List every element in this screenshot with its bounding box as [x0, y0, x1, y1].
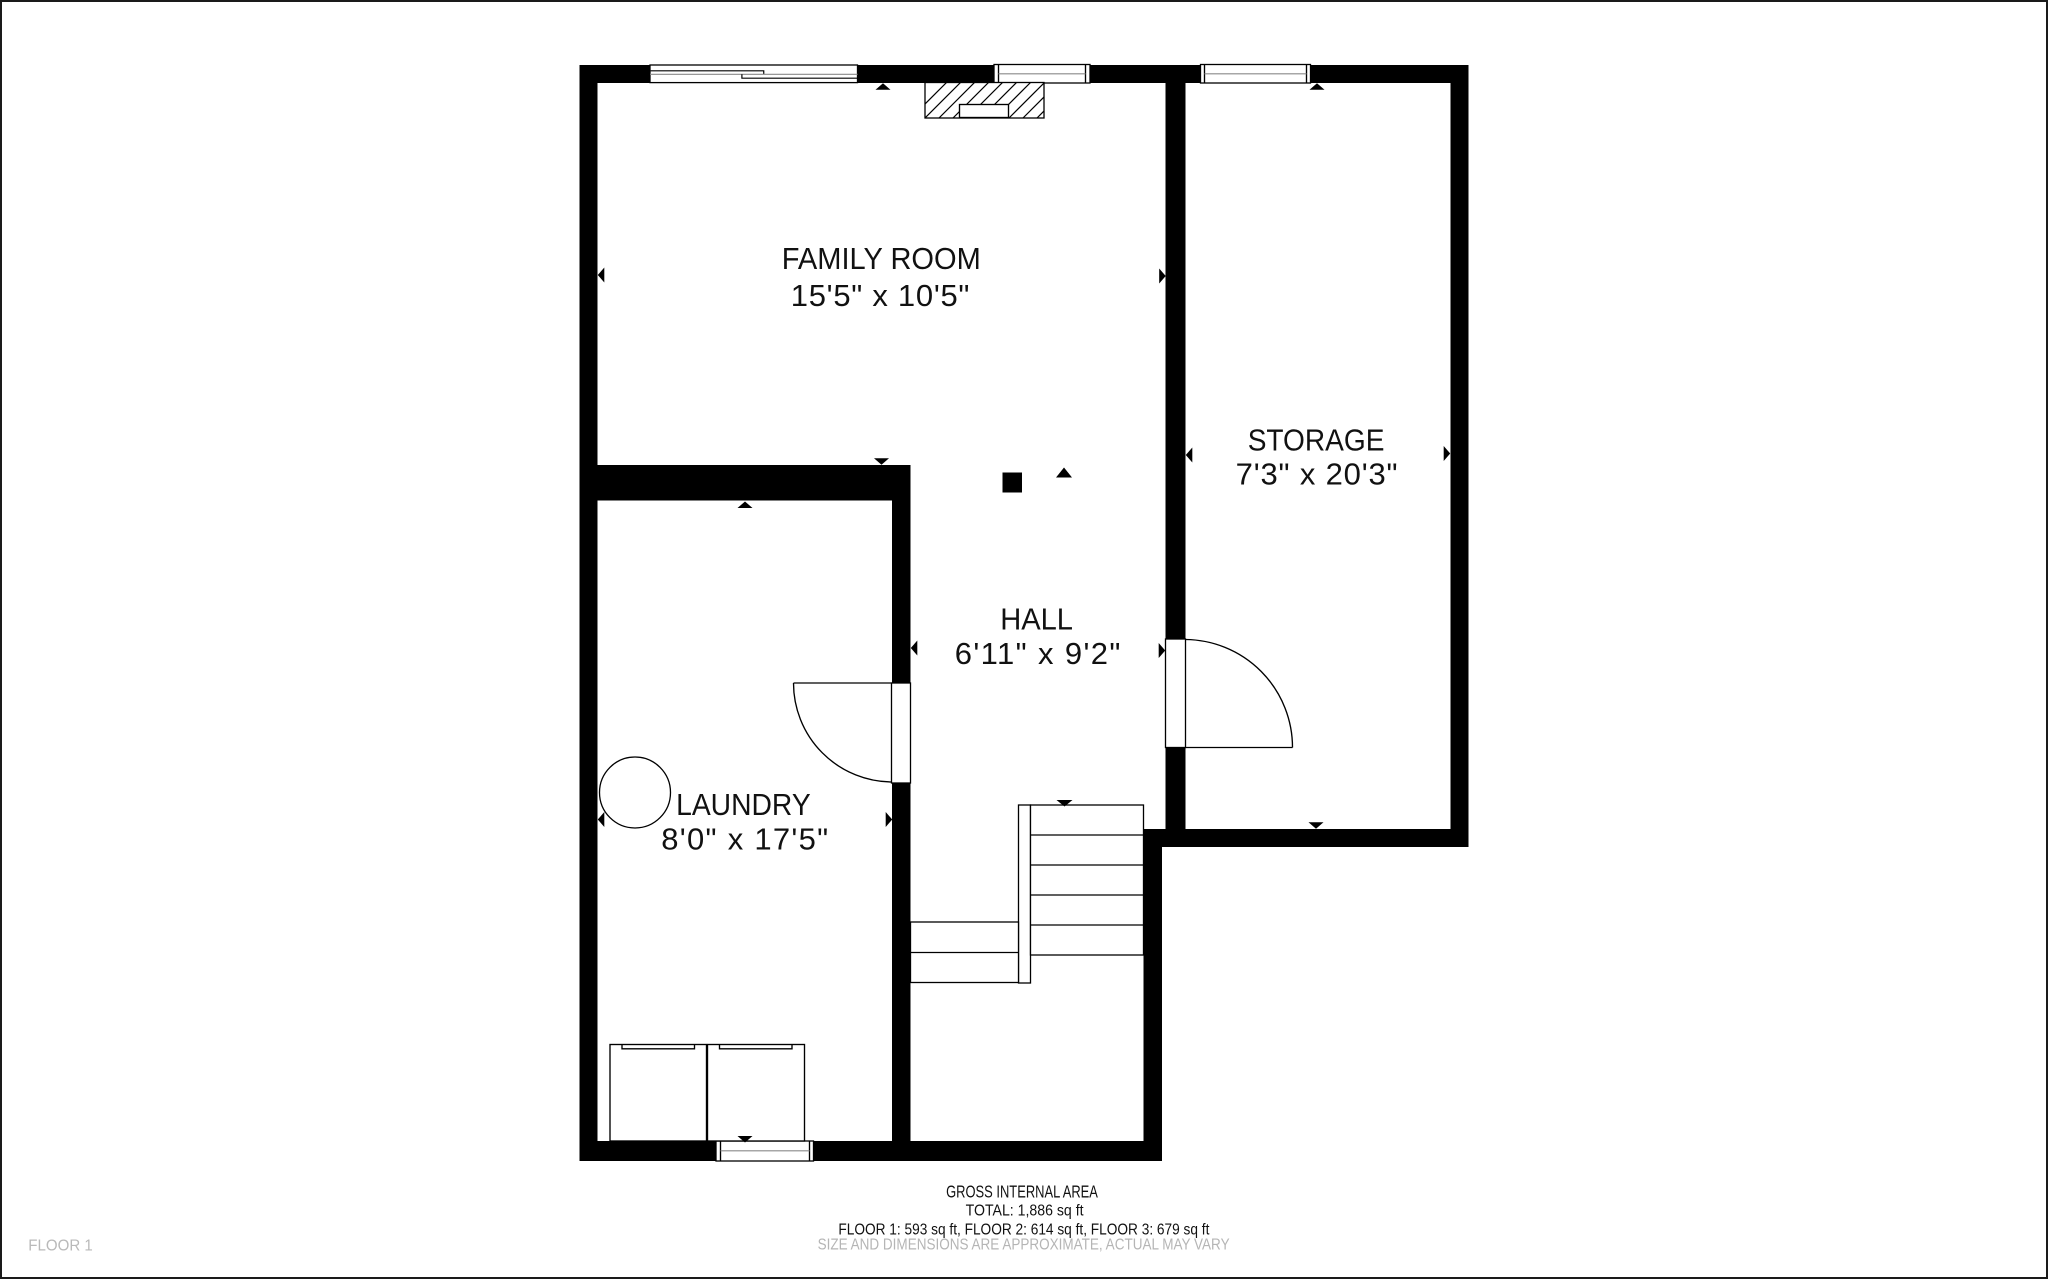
- svg-text:15'5" x 10'5": 15'5" x 10'5": [791, 278, 970, 313]
- svg-text:STORAGE: STORAGE: [1248, 423, 1385, 458]
- svg-text:LAUNDRY: LAUNDRY: [676, 787, 811, 822]
- svg-text:FLOOR 1: FLOOR 1: [28, 1237, 93, 1254]
- svg-text:GROSS INTERNAL AREA: GROSS INTERNAL AREA: [946, 1182, 1098, 1202]
- svg-text:TOTAL: 1,886 sq ft: TOTAL: 1,886 sq ft: [966, 1203, 1085, 1220]
- svg-text:7'3" x 20'3": 7'3" x 20'3": [1236, 457, 1398, 492]
- svg-text:8'0" x 17'5": 8'0" x 17'5": [661, 822, 828, 857]
- svg-text:SIZE AND DIMENSIONS ARE APPROX: SIZE AND DIMENSIONS ARE APPROXIMATE, ACT…: [818, 1237, 1230, 1254]
- svg-text:FAMILY ROOM: FAMILY ROOM: [782, 241, 981, 276]
- svg-text:HALL: HALL: [1000, 602, 1073, 637]
